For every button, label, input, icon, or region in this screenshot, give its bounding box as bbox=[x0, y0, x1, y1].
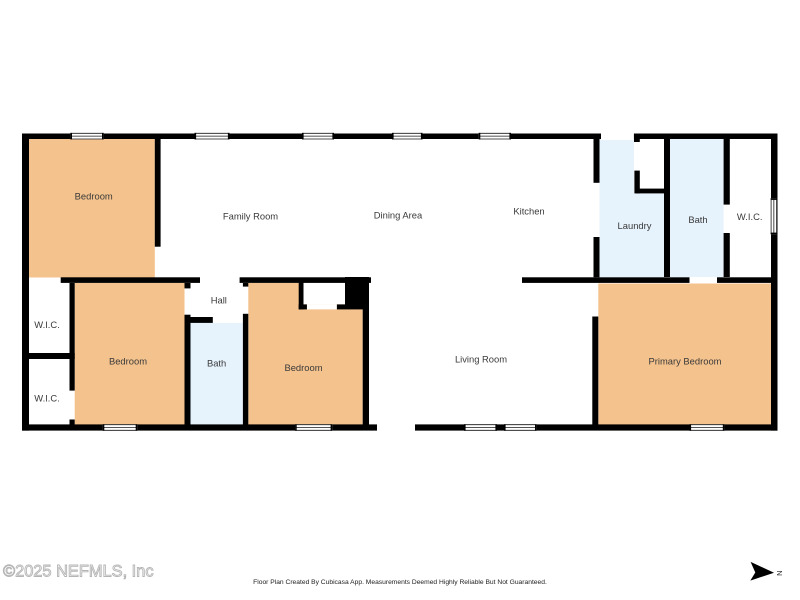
svg-text:Kitchen: Kitchen bbox=[513, 206, 544, 217]
svg-text:Hall: Hall bbox=[211, 295, 227, 306]
svg-text:Bedroom: Bedroom bbox=[75, 191, 113, 202]
svg-text:Primary Bedroom: Primary Bedroom bbox=[649, 356, 722, 367]
svg-text:Family Room: Family Room bbox=[223, 211, 278, 222]
svg-text:©2025 NEFMLS, Inc: ©2025 NEFMLS, Inc bbox=[3, 563, 154, 581]
svg-text:Floor Plan Created By Cubicasa: Floor Plan Created By Cubicasa App. Meas… bbox=[253, 579, 547, 586]
svg-text:Dining Area: Dining Area bbox=[374, 210, 423, 221]
svg-text:W.I.C.: W.I.C. bbox=[737, 211, 763, 222]
svg-text:Bedroom: Bedroom bbox=[284, 362, 322, 373]
svg-text:W.I.C.: W.I.C. bbox=[34, 319, 60, 330]
svg-text:Living Room: Living Room bbox=[455, 354, 507, 365]
svg-text:N: N bbox=[775, 570, 784, 575]
svg-text:Laundry: Laundry bbox=[618, 220, 652, 231]
svg-text:Bath: Bath bbox=[688, 214, 707, 225]
svg-text:W.I.C.: W.I.C. bbox=[34, 393, 60, 404]
svg-text:Bedroom: Bedroom bbox=[109, 356, 147, 367]
svg-text:Bath: Bath bbox=[207, 358, 226, 369]
